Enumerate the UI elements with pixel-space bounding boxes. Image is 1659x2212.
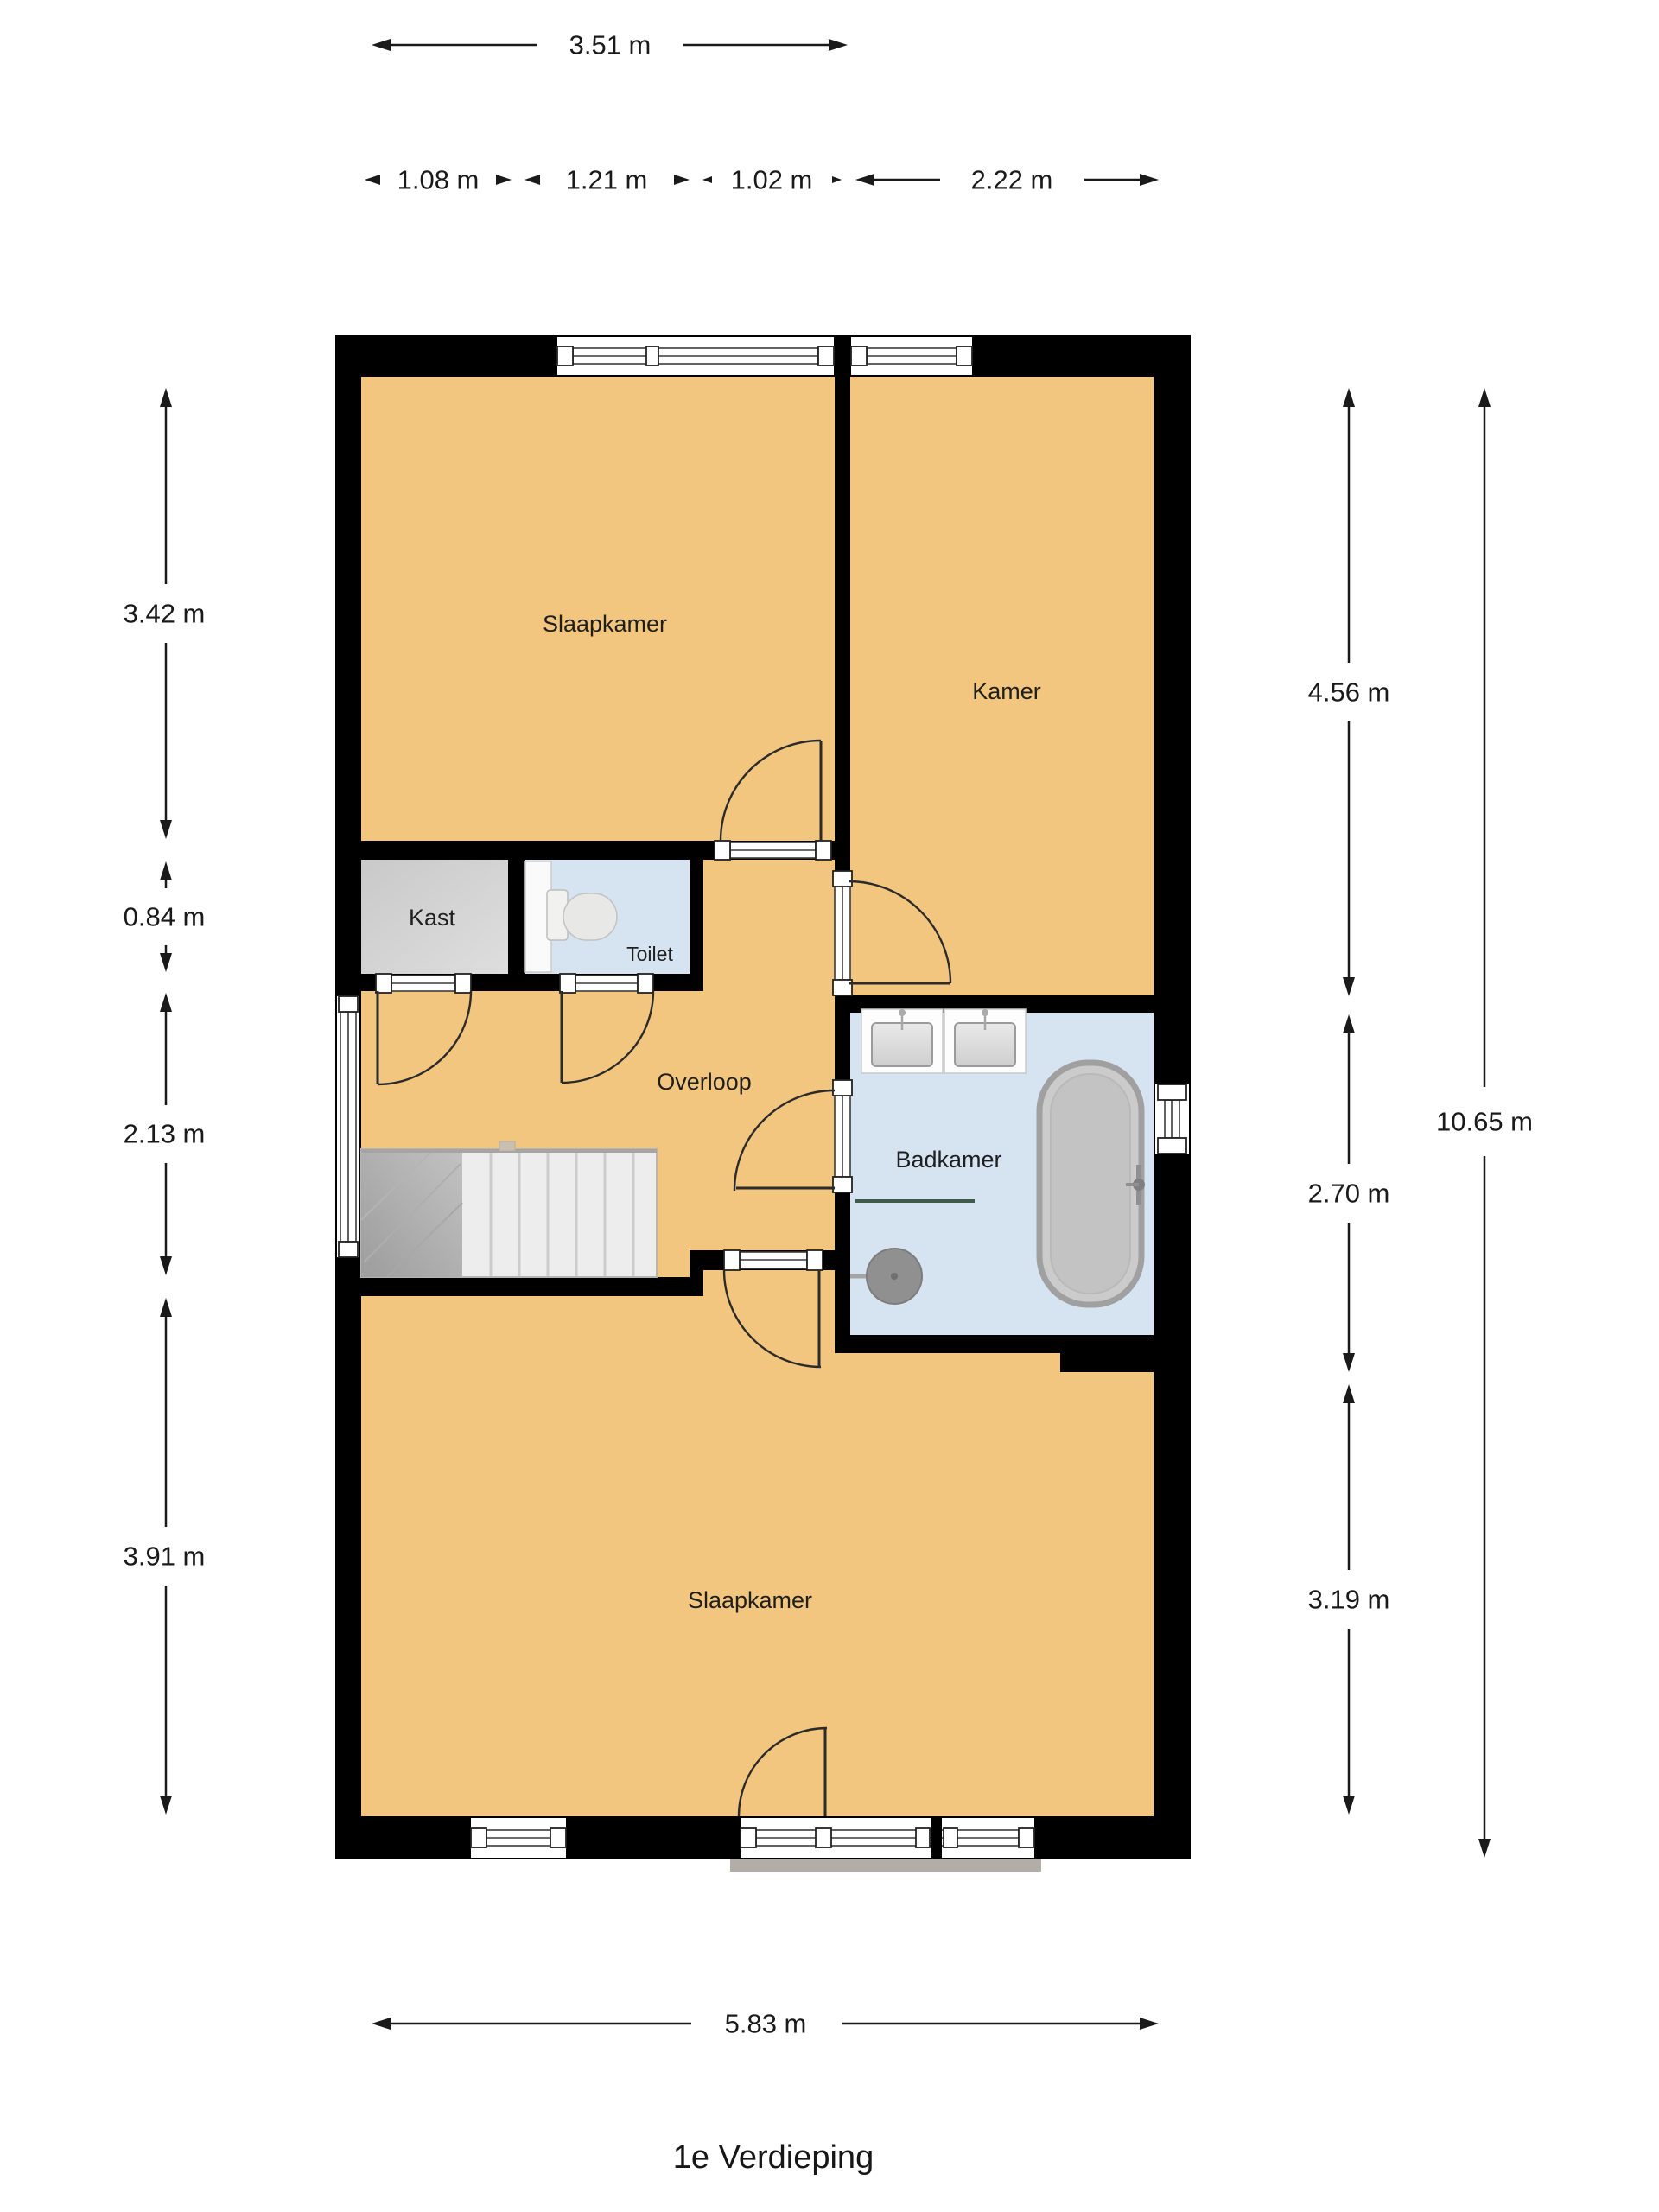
dimension-left-1: 3.42 m <box>124 388 206 839</box>
door-opening-slaapkamer-top <box>715 841 831 860</box>
window-door-bottom-band <box>730 1818 1041 1872</box>
dimension-label: 2.22 m <box>971 165 1053 195</box>
dimension-right-3: 3.19 m <box>1308 1384 1390 1815</box>
bathtub <box>1039 1063 1145 1305</box>
wall-toilet-right <box>690 860 703 991</box>
sink-left <box>861 1009 943 1073</box>
dimension-bottom-width: 5.83 m <box>372 2009 1159 2039</box>
wall-badkamer-bottom-right <box>1060 1335 1154 1372</box>
dimension-segment-3: 1.02 m <box>702 165 842 195</box>
dimension-right-total: 10.65 m <box>1436 388 1533 1858</box>
room-label-overloop: Overloop <box>657 1069 752 1095</box>
dimension-segment-1: 1.08 m <box>365 165 512 195</box>
stairs-newel <box>499 1141 515 1151</box>
dimension-label: 4.56 m <box>1308 677 1390 708</box>
wall-stairs-bottom <box>335 1277 703 1296</box>
wall-badkamer-bottom-left <box>835 1335 1060 1353</box>
stairs <box>361 1141 657 1277</box>
door-threshold-step <box>730 1859 1041 1872</box>
dimension-label: 1.02 m <box>731 165 813 195</box>
dimension-right-1: 4.56 m <box>1308 388 1390 996</box>
dimension-top-width: 3.51 m <box>372 30 848 60</box>
dimension-label: 5.83 m <box>725 2009 807 2039</box>
dimension-right-2: 2.70 m <box>1308 1014 1390 1372</box>
dimension-label: 2.70 m <box>1308 1179 1390 1209</box>
dimension-label: 3.19 m <box>1308 1585 1390 1615</box>
dimension-segment-2: 1.21 m <box>524 165 690 195</box>
dimension-left-3: 2.13 m <box>124 993 206 1275</box>
dimension-left-2: 0.84 m <box>124 861 206 972</box>
room-label-badkamer: Badkamer <box>895 1147 1001 1173</box>
dimension-left-4: 3.91 m <box>124 1298 206 1815</box>
page-title: 1e Verdieping <box>673 2139 874 2176</box>
sink-right <box>944 1009 1026 1073</box>
dimension-label: 2.13 m <box>124 1119 206 1149</box>
door-opening-badkamer <box>833 1080 852 1192</box>
window-slaapkamer-top <box>557 337 834 375</box>
room-label-slaapkamer-bottom: Slaapkamer <box>688 1587 812 1613</box>
dimension-label: 1.21 m <box>566 165 648 195</box>
window-left-wall <box>337 996 359 1257</box>
window-kamer-top <box>851 337 972 375</box>
door-opening-slaapkamer-bottom <box>724 1250 823 1270</box>
wall-connector <box>690 1250 703 1296</box>
floorplan-page: Slaapkamer Kamer Kast Toilet Overloop Ba… <box>0 0 1659 2212</box>
room-label-kast: Kast <box>409 905 456 931</box>
door-opening-kast <box>376 974 471 993</box>
toilet-bowl <box>563 893 617 940</box>
floorplan-canvas: Slaapkamer Kamer Kast Toilet Overloop Ba… <box>0 0 1659 2212</box>
dimension-segment-4: 2.22 m <box>855 165 1159 195</box>
room-label-toilet: Toilet <box>626 943 673 965</box>
room-label-slaapkamer-top: Slaapkamer <box>543 611 667 637</box>
dimension-label: 10.65 m <box>1436 1107 1533 1137</box>
room-label-kamer: Kamer <box>972 678 1041 704</box>
door-opening-kamer <box>833 871 852 995</box>
window-badkamer-right <box>1155 1084 1189 1154</box>
dimension-label: 1.08 m <box>397 165 480 195</box>
dimension-label: 3.42 m <box>124 599 206 629</box>
door-opening-toilet <box>560 974 653 993</box>
dimension-label: 3.51 m <box>569 30 652 60</box>
dimension-label: 3.91 m <box>124 1541 206 1572</box>
wall-kast-right <box>508 860 525 991</box>
window-bottom-left <box>471 1818 566 1858</box>
dimension-label: 0.84 m <box>124 902 206 932</box>
